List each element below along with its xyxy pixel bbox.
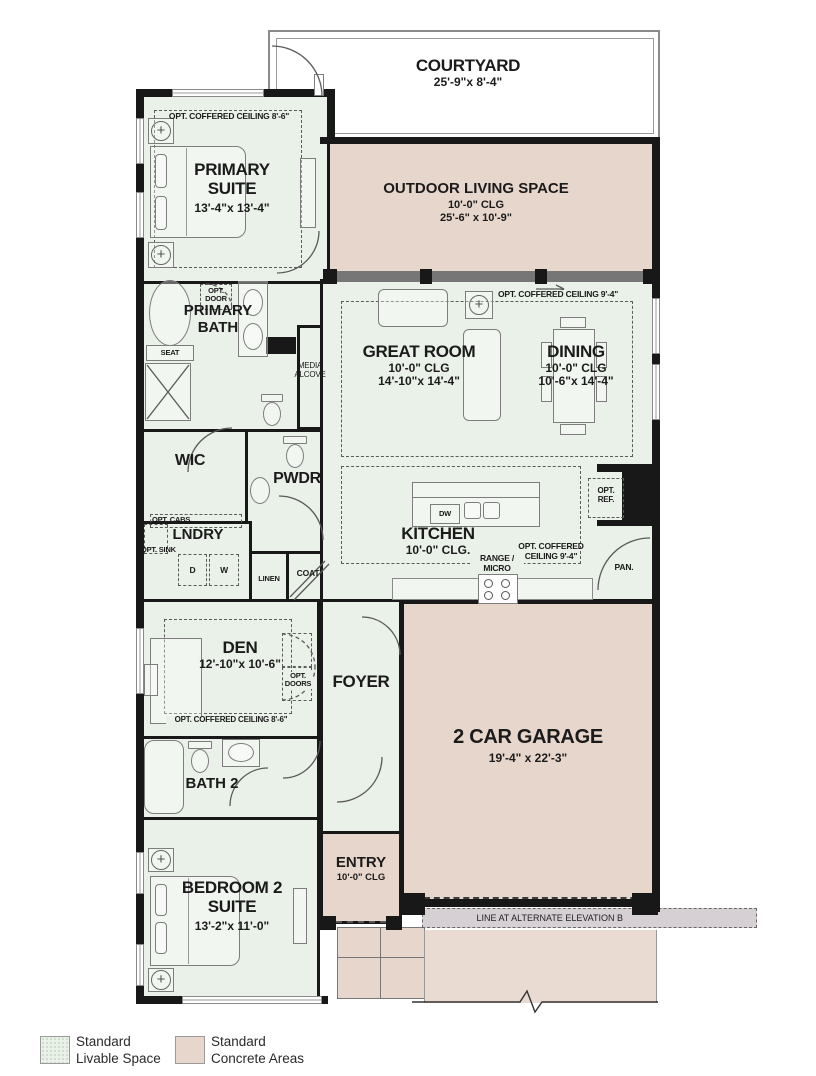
outdoor-living-dims: 25'-6" x 10'-9" bbox=[316, 212, 636, 224]
linen-label: LINEN bbox=[247, 575, 291, 583]
garage-dims: 19'-4" x 22'-3" bbox=[400, 752, 656, 765]
entry-threshold bbox=[336, 921, 386, 923]
alt-elevation-label: LINE AT ALTERNATE ELEVATION B bbox=[476, 913, 623, 923]
pwdr-toilet-tank bbox=[283, 436, 307, 444]
window-dining-right-2 bbox=[652, 364, 660, 420]
dining-label: DINING bbox=[516, 342, 636, 361]
media-alcove-label: MEDIA ALCOVE bbox=[287, 362, 333, 380]
dryer-label: D bbox=[178, 554, 207, 586]
kitchen-label: KITCHEN bbox=[368, 524, 508, 543]
bedroom2-label: BEDROOM 2 SUITE bbox=[167, 878, 297, 916]
light-icon bbox=[151, 121, 171, 141]
courtyard-dims: 25'-9"x 8'-4" bbox=[368, 76, 568, 89]
bath2-toilet-tank bbox=[188, 741, 212, 749]
wc-toilet-tank bbox=[261, 394, 283, 402]
bedroom2-pillow-1 bbox=[155, 884, 167, 916]
slider-door-band bbox=[323, 271, 657, 282]
outdoor-living-clg: 10'-0" CLG bbox=[316, 199, 636, 211]
window-dining-right-1 bbox=[652, 298, 660, 354]
wall-above-pantry bbox=[597, 464, 657, 472]
garage-label: 2 CAR GARAGE bbox=[400, 726, 656, 748]
primary-suite-dims: 13'-4"x 13'-4" bbox=[162, 202, 302, 215]
wall-top-outdoor bbox=[320, 137, 660, 144]
den-chair bbox=[144, 664, 158, 696]
floor-plan: LINE AT ALTERNATE ELEVATION B bbox=[0, 0, 816, 1076]
great-ceiling-note: OPT. COFFERED CEILING 9'-4" bbox=[498, 290, 638, 300]
courtyard-label: COURTYARD bbox=[368, 56, 568, 75]
primary-pillow-1 bbox=[155, 154, 167, 188]
light-icon bbox=[151, 850, 171, 870]
window-bedroom2-bottom bbox=[182, 996, 322, 1004]
great-room-label: GREAT ROOM bbox=[344, 342, 494, 361]
burner bbox=[501, 579, 510, 588]
light-icon bbox=[151, 970, 171, 990]
opt-door-label: OPT. DOOR bbox=[199, 287, 233, 304]
wic-room bbox=[140, 429, 248, 524]
pwdr-label: PWDR bbox=[262, 470, 332, 488]
bedroom2-dims: 13'-2"x 11'-0" bbox=[167, 920, 297, 933]
den-label: DEN bbox=[180, 638, 300, 657]
garage-post-right bbox=[632, 893, 658, 915]
entry-post-right bbox=[386, 916, 402, 930]
window-primary-left-2 bbox=[136, 192, 144, 238]
burner bbox=[501, 591, 510, 600]
slider-post-3 bbox=[535, 269, 547, 284]
coat-label: COAT bbox=[288, 569, 328, 579]
pwdr-toilet-bowl bbox=[286, 444, 304, 468]
steps-divider-v bbox=[380, 927, 381, 999]
den-ceiling-note: OPT. COFFERED CEILING 8'-6" bbox=[166, 716, 296, 725]
kitchen-ceiling-note: OPT. COFFERED CEILING 9'-4" bbox=[513, 542, 589, 561]
legend-livable-label: Standard Livable Space bbox=[76, 1034, 171, 1068]
dw-label: DW bbox=[430, 504, 460, 524]
light-icon bbox=[469, 295, 489, 315]
island-counter-line bbox=[412, 497, 540, 498]
island-sink-2 bbox=[483, 502, 500, 519]
burner bbox=[484, 579, 493, 588]
opt-cabs-label: OPT. CABS. bbox=[152, 516, 216, 524]
wall-below-ref bbox=[597, 520, 657, 526]
entry-clg: 10'-0" CLG bbox=[322, 873, 400, 884]
seat-label: SEAT bbox=[146, 349, 194, 357]
window-bedroom2-left-1 bbox=[136, 852, 144, 894]
built-in-ref-box bbox=[622, 470, 652, 522]
opt-doors-label: OPT. DOORS bbox=[283, 672, 313, 689]
legend-livable-swatch bbox=[40, 1036, 70, 1064]
courtyard-gate-leaf bbox=[314, 74, 324, 96]
den-dims: 12'-10"x 10'-6" bbox=[168, 658, 312, 671]
slider-post-1 bbox=[323, 269, 337, 284]
alt-elevation-band: LINE AT ALTERNATE ELEVATION B bbox=[422, 908, 757, 928]
dining-chair bbox=[560, 317, 586, 328]
steps-divider-h bbox=[337, 957, 425, 958]
opt-ref-label: OPT. REF. bbox=[590, 487, 622, 505]
primary-bath-label: PRIMARY BATH bbox=[172, 303, 264, 337]
dining-chair bbox=[560, 424, 586, 435]
foyer-hall bbox=[320, 599, 402, 834]
driveway bbox=[424, 930, 657, 1003]
bath2-toilet-bowl bbox=[191, 749, 209, 773]
legend-concrete-swatch bbox=[175, 1036, 205, 1064]
legend-concrete-label: Standard Concrete Areas bbox=[211, 1034, 321, 1068]
slider-post-2 bbox=[420, 269, 432, 284]
window-den-left bbox=[136, 628, 144, 694]
window-primary-left-1 bbox=[136, 118, 144, 164]
bedroom2-pillow-2 bbox=[155, 922, 167, 954]
garage-post-left bbox=[399, 893, 425, 915]
bath2-label: BATH 2 bbox=[160, 776, 264, 793]
range-cooktop bbox=[478, 574, 518, 604]
entry-label: ENTRY bbox=[322, 855, 400, 872]
burner bbox=[484, 591, 493, 600]
outdoor-living-label: OUTDOOR LIVING SPACE bbox=[316, 181, 636, 198]
wc-wall-chunk bbox=[266, 337, 296, 354]
washer-label: W bbox=[209, 554, 239, 586]
primary-ceiling-note: OPT. COFFERED CEILING 8'-6" bbox=[156, 112, 302, 122]
island-sink-1 bbox=[464, 502, 481, 519]
entry-steps bbox=[337, 927, 425, 999]
bath2-sink bbox=[228, 743, 254, 762]
primary-suite-label: PRIMARY SUITE bbox=[172, 160, 292, 198]
primary-dresser bbox=[300, 158, 316, 228]
foyer-label: FOYER bbox=[320, 672, 402, 691]
wall-garage-bottom bbox=[399, 899, 659, 907]
window-primary-top bbox=[172, 89, 264, 97]
wic-label: WIC bbox=[158, 452, 222, 470]
pantry-label: PAN. bbox=[604, 563, 644, 573]
light-icon bbox=[151, 245, 171, 265]
range-micro-label: RANGE / MICRO bbox=[470, 554, 524, 573]
great-room-dims: 14'-10"x 14'-4" bbox=[344, 375, 494, 388]
window-bedroom2-left-2 bbox=[136, 944, 144, 986]
wall-primary-right bbox=[327, 89, 335, 144]
shower bbox=[145, 363, 191, 421]
wc-toilet-bowl bbox=[263, 402, 281, 426]
dining-dims: 10'-6"x 14'-4" bbox=[516, 375, 636, 388]
entry-post-left bbox=[320, 916, 336, 930]
lndry-label: LNDRY bbox=[158, 527, 238, 544]
slider-post-4 bbox=[643, 269, 657, 284]
great-room-sofa-1 bbox=[378, 289, 448, 327]
